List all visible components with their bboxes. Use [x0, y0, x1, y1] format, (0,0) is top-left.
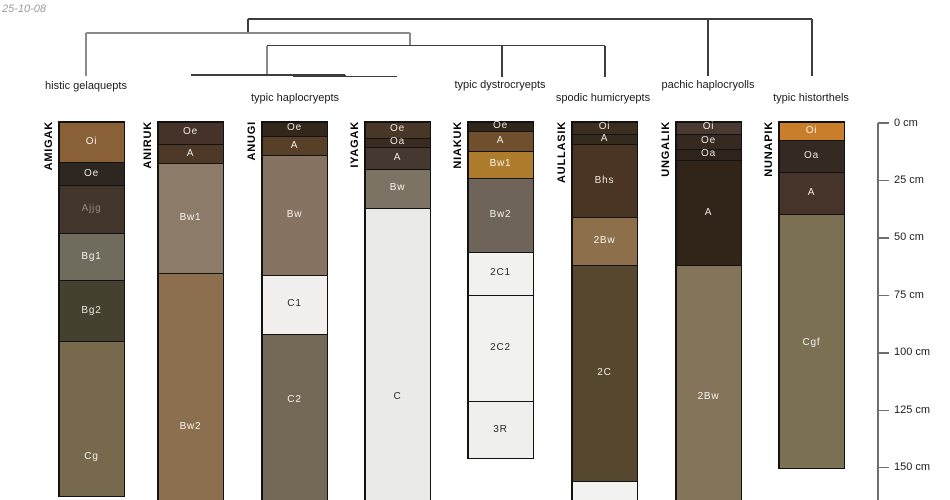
horizon-label: A — [366, 151, 430, 165]
horizon-label: C — [366, 390, 430, 404]
profile-column-iyagak: OeOaABwC — [364, 121, 431, 500]
profile-column-anugi: OeABwC1C2 — [261, 121, 328, 500]
depth-tick-label: 150 cm — [894, 461, 930, 474]
horizon-label: Bw1 — [159, 211, 223, 225]
horizon-label: 2C2 — [469, 341, 533, 355]
soil-horizon: C1 — [263, 276, 327, 334]
horizon-label: 2Bw — [573, 234, 637, 248]
depth-tick-label: 25 cm — [894, 174, 924, 187]
horizon-label: Bw — [263, 208, 327, 222]
soil-horizon: Cgf — [780, 215, 844, 468]
soil-horizon: Oa — [780, 141, 844, 172]
profile-name: ANIRUK — [141, 121, 155, 205]
profile-column-amigak: OiOeAjjgBg1Bg2Cg — [58, 121, 125, 497]
dendrogram-segment — [293, 76, 397, 78]
soil-horizon: 2Bw — [677, 266, 741, 500]
horizon-label: Oa — [677, 147, 741, 161]
profile-name: UNGALIK — [659, 121, 673, 205]
soil-horizon: C — [366, 209, 430, 500]
soil-horizon: C2 — [263, 335, 327, 500]
soil-horizon: Oi — [677, 123, 741, 134]
dendrogram-segment — [811, 19, 813, 76]
horizon-label: Oe — [366, 122, 430, 136]
horizon-label: Oi — [60, 135, 124, 149]
horizon-label: Bhs — [573, 174, 637, 188]
horizon-label: 2C1 — [469, 266, 533, 280]
depth-tick-label: 0 cm — [894, 117, 918, 130]
soil-horizon: Oe — [60, 163, 124, 185]
soil-horizon: Bg1 — [60, 234, 124, 280]
horizon-label: C2 — [263, 393, 327, 407]
horizon-label: Oe — [159, 125, 223, 139]
soil-horizon: Ajjg — [60, 186, 124, 233]
soil-horizon: Oa — [677, 150, 741, 160]
soil-horizon: A — [469, 132, 533, 151]
soil-horizon: A — [159, 145, 223, 163]
depth-tick — [878, 467, 889, 469]
profile-column-ungalik: OiOeOaA2Bw — [675, 121, 742, 500]
horizon-label: Oi — [780, 124, 844, 138]
profile-name: AULLASIK — [555, 121, 569, 205]
depth-tick — [878, 180, 889, 182]
horizon-label: Oe — [677, 134, 741, 148]
soil-horizon: Oe — [263, 123, 327, 136]
soil-horizon: 2C — [573, 266, 637, 481]
soil-horizon: A — [677, 161, 741, 265]
depth-tick-label: 100 cm — [894, 346, 930, 359]
profile-column-aullasik: OiABhs2Bw2C — [571, 121, 638, 500]
soil-horizon: A — [780, 173, 844, 214]
taxon-label: typic historthels — [731, 92, 891, 105]
horizon-label: 3R — [469, 423, 533, 437]
taxon-label: typic dystrocryepts — [420, 79, 580, 92]
horizon-label: Ajjg — [60, 202, 124, 216]
profile-column-aniruk: OeABw1Bw2 — [157, 121, 224, 500]
dendrogram-segment — [501, 46, 503, 78]
horizon-label: Bw2 — [469, 208, 533, 222]
horizon-label: Bw2 — [159, 420, 223, 434]
dendrogram-segment — [266, 46, 268, 76]
horizon-label: 2Bw — [677, 390, 741, 404]
soil-horizon: Oe — [159, 123, 223, 144]
dendrogram-segment — [86, 32, 410, 34]
soil-horizon: Oa — [366, 139, 430, 147]
dendrogram-segment — [604, 46, 606, 78]
horizon-label: Oe — [60, 167, 124, 181]
depth-tick — [878, 237, 889, 239]
soil-horizon: Bw — [263, 156, 327, 275]
soil-horizon: A — [263, 137, 327, 155]
depth-tick — [878, 122, 889, 124]
taxon-label: spodic humicryepts — [523, 92, 683, 105]
horizon-label: A — [159, 147, 223, 161]
soil-horizon: Bw1 — [159, 164, 223, 273]
soil-horizon: Oi — [780, 123, 844, 140]
soil-horizon: Oi — [60, 123, 124, 162]
horizon-label: A — [263, 139, 327, 153]
soil-horizon: Bg2 — [60, 281, 124, 341]
profile-name: NIAKUK — [451, 121, 465, 205]
profile-column-niakuk: OeABw1Bw22C12C23R — [467, 121, 534, 459]
horizon-label: Bw — [366, 181, 430, 195]
dendrogram-segment — [85, 33, 87, 76]
horizon-label: Bw1 — [469, 157, 533, 171]
horizon-label: Cgf — [780, 336, 844, 350]
horizon-label: Oa — [366, 135, 430, 149]
dendrogram-segment — [707, 19, 709, 76]
horizon-label: 2C — [573, 366, 637, 380]
soil-horizon: A — [366, 148, 430, 169]
horizon-label: A — [573, 132, 637, 146]
taxon-label: pachic haplocryolls — [628, 79, 788, 92]
soil-horizon: Oe — [469, 123, 533, 131]
soil-horizon: 3R — [469, 402, 533, 458]
soil-horizon: 2C1 — [469, 253, 533, 295]
profile-name: ANUGI — [245, 121, 259, 205]
depth-tick-label: 125 cm — [894, 404, 930, 417]
depth-tick-label: 50 cm — [894, 231, 924, 244]
soil-horizon: Bw1 — [469, 152, 533, 178]
soil-horizon: 2Bw — [573, 218, 637, 265]
horizon-label: Oi — [677, 120, 741, 134]
depth-tick-label: 75 cm — [894, 289, 924, 302]
soil-horizon: Bhs — [573, 145, 637, 217]
soil-horizon: Bw — [366, 170, 430, 208]
depth-tick — [878, 352, 889, 354]
horizon-label: Bg1 — [60, 250, 124, 264]
profile-column-nunapik: OiOaACgf — [778, 121, 845, 469]
horizon-label: Oe — [263, 121, 327, 135]
horizon-label: A — [677, 206, 741, 220]
horizon-label: Bg2 — [60, 304, 124, 318]
dendrogram-segment — [247, 19, 249, 33]
taxon-label: histic gelaquepts — [6, 80, 166, 93]
profile-name: AMIGAK — [42, 121, 56, 205]
dendrogram-segment — [409, 33, 411, 46]
horizon-label: Oa — [780, 149, 844, 163]
soil-horizon — [573, 482, 637, 500]
profile-name: IYAGAK — [348, 121, 362, 205]
soil-horizon: Bw2 — [159, 274, 223, 500]
horizon-label: C1 — [263, 297, 327, 311]
dendrogram-segment — [267, 45, 605, 47]
soil-taxonomy-dendrogram-figure: 25-10-08 histic gelaqueptstypic haplocry… — [0, 0, 950, 500]
soil-horizon: Cg — [60, 342, 124, 496]
plot-timestamp: 25-10-08 — [2, 3, 46, 15]
profile-name: NUNAPIK — [762, 121, 776, 205]
dendrogram-segment — [248, 18, 812, 20]
soil-horizon: 2C2 — [469, 296, 533, 401]
soil-horizon: Bw2 — [469, 179, 533, 252]
depth-tick — [878, 295, 889, 297]
horizon-label: Cg — [60, 450, 124, 464]
soil-horizon: A — [573, 135, 637, 144]
taxon-label: typic haplocryepts — [215, 92, 375, 105]
depth-tick — [878, 410, 889, 412]
horizon-label: A — [780, 186, 844, 200]
horizon-label: Oe — [469, 119, 533, 133]
horizon-label: A — [469, 134, 533, 148]
